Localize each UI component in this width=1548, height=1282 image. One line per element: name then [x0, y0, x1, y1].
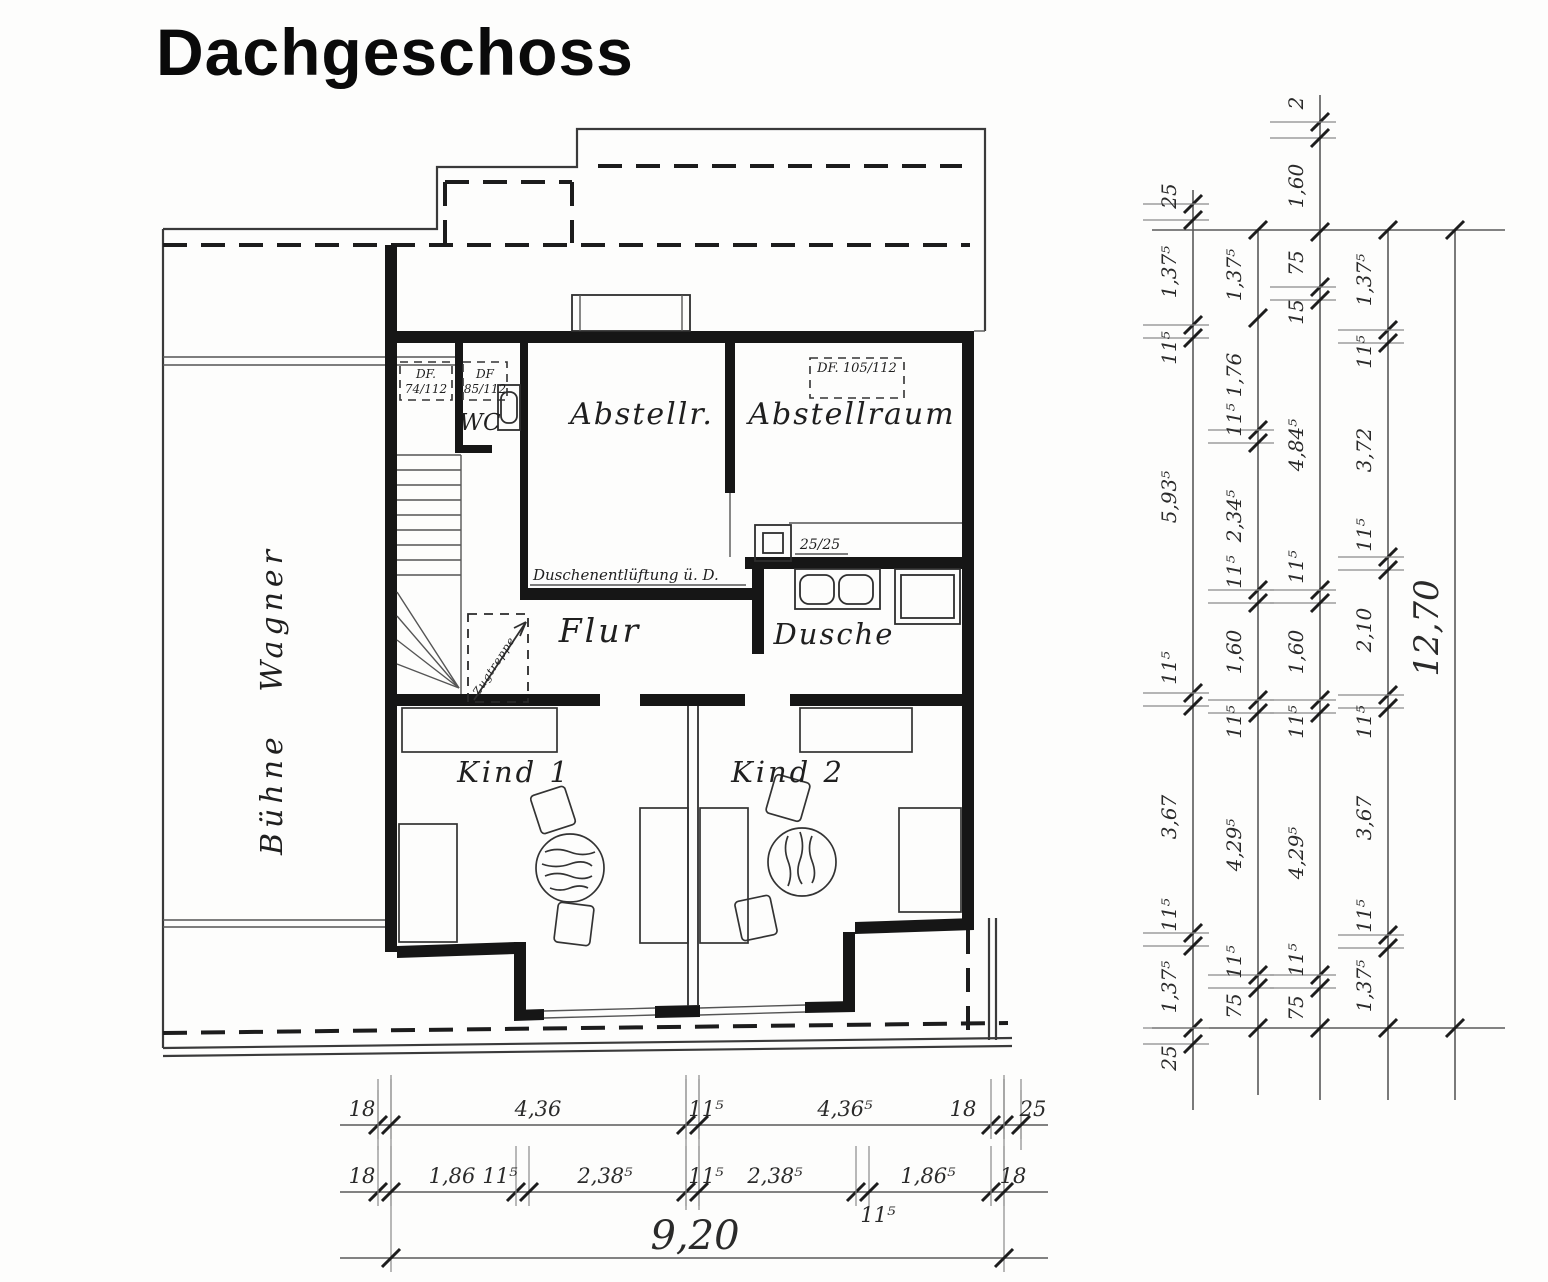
- dimension-label: 3,67: [1157, 794, 1181, 839]
- dimension-chains-right: 251,37⁵11⁵5,93⁵11⁵3,6711⁵1,37⁵251,37⁵1,7…: [1143, 95, 1505, 1110]
- dimension-label: 11⁵: [1352, 335, 1376, 368]
- df-label: 74/112: [405, 382, 447, 396]
- dim-chain-c2: 1,37⁵1,7611⁵2,34⁵11⁵1,6011⁵4,29⁵11⁵75: [1208, 221, 1274, 1095]
- dimension-label: 5,93⁵: [1157, 471, 1181, 524]
- dim-row-r3: 9,20: [340, 1213, 1048, 1267]
- dimension-label: 4,36⁵: [816, 1097, 873, 1121]
- dimension-label: 3,67: [1352, 795, 1376, 840]
- dimension-label: 1,60: [1284, 163, 1308, 208]
- dimension-label: 75: [1284, 250, 1308, 275]
- dimension-label: 11⁵: [1222, 555, 1246, 588]
- scanned-floor-plan-page: Dachgeschoss: [0, 0, 1548, 1282]
- dimension-label: 1,37⁵: [1157, 961, 1181, 1014]
- dimension-label: 11⁵: [860, 1203, 896, 1227]
- dimension-label: 1,37⁵: [1157, 246, 1181, 299]
- dimension-label: 18: [349, 1097, 376, 1121]
- dimension-label: 11⁵: [1222, 705, 1246, 738]
- df-label: DF: [475, 367, 495, 381]
- dimension-label: 9,20: [650, 1213, 739, 1259]
- dimension-label: 75: [1222, 993, 1246, 1018]
- dimension-label: 2: [1284, 97, 1308, 111]
- dimension-label: 11⁵: [1157, 651, 1181, 684]
- loft-ladder-label: Zugtreppe: [470, 634, 518, 699]
- dimension-label: 2,38⁵: [746, 1164, 803, 1188]
- duct-size-label: 25/25: [799, 537, 840, 553]
- dim-chain-c5: 12,70: [1407, 221, 1464, 1100]
- purlin-lines: [163, 357, 455, 927]
- room-label-kind1: Kind 1: [456, 755, 571, 789]
- dim-chain-c3: 21,6075154,84⁵11⁵1,6011⁵4,29⁵11⁵75: [1270, 95, 1336, 1100]
- dimension-label: 1,86: [429, 1164, 476, 1188]
- dimension-label: 2,10: [1352, 607, 1376, 653]
- room-label-abstellr: Abstellr.: [567, 397, 714, 432]
- dim-chain-c4: 1,37⁵11⁵3,7211⁵2,1011⁵3,6711⁵1,37⁵: [1338, 221, 1404, 1100]
- dimension-label: 2,38⁵: [576, 1164, 633, 1188]
- dimension-label: 11⁵: [1222, 403, 1246, 436]
- dimension-label: 2,34⁵: [1222, 490, 1246, 544]
- dimension-label: 4,29⁵: [1222, 819, 1246, 873]
- dimension-label: 1,60: [1222, 629, 1246, 674]
- dimension-label: 25: [1157, 183, 1181, 209]
- df-label: DF.: [415, 367, 436, 381]
- dimension-chains-bottom: 184,3611⁵4,36⁵1825181,8611⁵2,38⁵11⁵2,38⁵…: [340, 1075, 1048, 1272]
- dimension-label: 1,76: [1222, 352, 1246, 397]
- dimension-label: 18: [349, 1164, 376, 1188]
- dimension-label: 11⁵: [1352, 705, 1376, 738]
- dimension-label: 15: [1284, 299, 1308, 324]
- furniture-kind1: [399, 708, 688, 946]
- room-label-buehne: Bühne Wagner: [255, 545, 290, 856]
- dimension-label: 11⁵: [688, 1164, 724, 1188]
- dimension-label: 3,72: [1352, 428, 1376, 473]
- room-label-abstellraum: Abstellraum: [745, 397, 955, 432]
- room-labels: Bühne Wagner WC Abstellr. Abstellraum Fl…: [255, 397, 956, 856]
- dimension-label: 4,36: [514, 1097, 562, 1121]
- df-label: DF. 105/112: [816, 361, 897, 376]
- room-label-dusche: Dusche: [773, 617, 895, 651]
- dimension-label: 11⁵: [1222, 945, 1246, 978]
- dimension-label: 11⁵: [1284, 943, 1308, 976]
- dimension-label: 11⁵: [1284, 550, 1308, 583]
- furniture-kind2: [700, 708, 961, 943]
- dimension-label: 1,37⁵: [1352, 254, 1376, 307]
- room-label-wc: WC: [459, 410, 501, 436]
- dimension-label: 11⁵: [1157, 331, 1181, 364]
- room-label-kind2: Kind 2: [730, 755, 845, 789]
- dimension-label: 1,37⁵: [1222, 249, 1246, 302]
- staircase: [397, 455, 461, 694]
- dimension-label: 25: [1157, 1045, 1181, 1071]
- room-label-flur: Flur: [558, 611, 641, 650]
- df-label: 85/112: [464, 382, 506, 396]
- dimension-label: 25: [1019, 1097, 1047, 1121]
- dimension-label: 1,60: [1284, 629, 1308, 674]
- dimension-label: 11⁵: [1157, 898, 1181, 931]
- dimension-label: 1,86⁵: [900, 1164, 956, 1188]
- kind1-table: [536, 834, 604, 902]
- dimension-label: 11⁵: [1352, 899, 1376, 932]
- loft-ladder-hatch: Zugtreppe: [468, 614, 528, 702]
- dim-chain-c1: 251,37⁵11⁵5,93⁵11⁵3,6711⁵1,37⁵25: [1143, 183, 1209, 1110]
- dimension-label: 4,84⁵: [1284, 419, 1308, 473]
- dimension-label: 4,29⁵: [1284, 827, 1308, 881]
- roof-windows: DF. 74/112 DF 85/112 DF. 105/112: [400, 358, 904, 400]
- dimension-label: 75: [1284, 995, 1308, 1020]
- dimension-label: 11⁵: [1284, 705, 1308, 738]
- dimension-label: 1,37⁵: [1352, 960, 1376, 1013]
- dim-row-r1: 184,3611⁵4,36⁵1825: [340, 1079, 1048, 1139]
- dimension-label: 11⁵: [688, 1097, 724, 1121]
- dimension-label: 18: [1000, 1164, 1027, 1188]
- dimension-label: 12,70: [1407, 579, 1447, 676]
- dimension-label: 11⁵: [1352, 518, 1376, 551]
- dimension-label: 18: [950, 1097, 977, 1121]
- floor-plan-drawing: Zugtreppe: [0, 0, 1548, 1282]
- vent-note: Duschenentlüftung ü. D.: [532, 566, 719, 584]
- dimension-label: 11⁵: [482, 1164, 518, 1188]
